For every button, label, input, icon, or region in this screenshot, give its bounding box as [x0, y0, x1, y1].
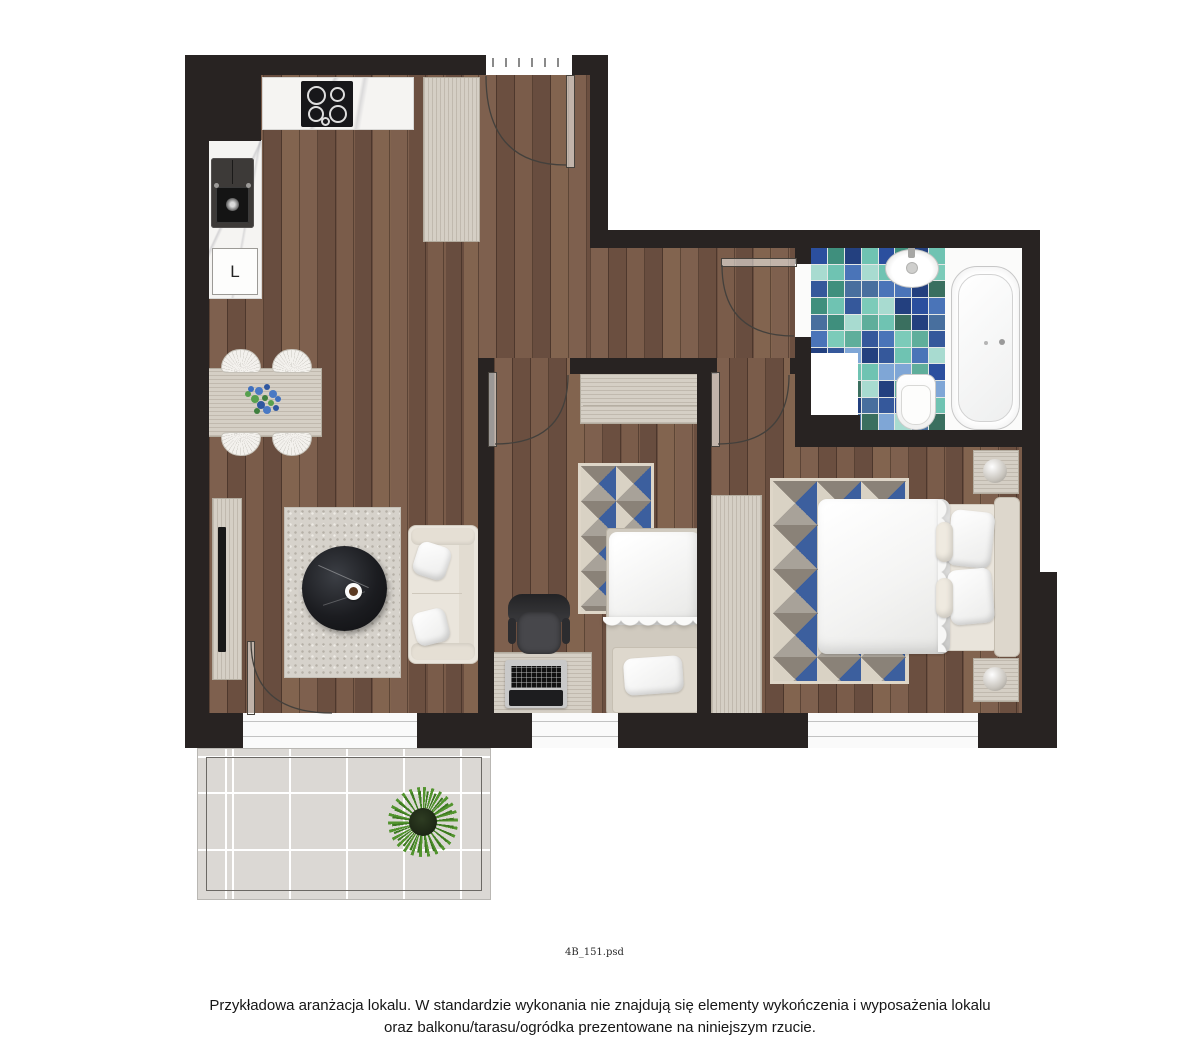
entrance-door-arc	[486, 76, 566, 165]
caption: Przykładowa aranżacja lokalu. W standard…	[0, 995, 1200, 1039]
caption-line2: oraz balkonu/tarasu/ogródka prezentowane…	[0, 1017, 1200, 1039]
bathroom-door-arc	[722, 265, 794, 336]
small-bedroom-door-arc	[495, 375, 568, 444]
floor-plan-canvas: L	[0, 0, 1200, 1060]
balcony-door-arc	[251, 641, 332, 713]
caption-line1: Przykładowa aranżacja lokalu. W standard…	[0, 995, 1200, 1017]
door-swing-arcs	[0, 0, 1200, 1060]
master-bedroom-door-arc	[718, 375, 789, 444]
file-label: 4B_151.psd	[565, 947, 624, 958]
